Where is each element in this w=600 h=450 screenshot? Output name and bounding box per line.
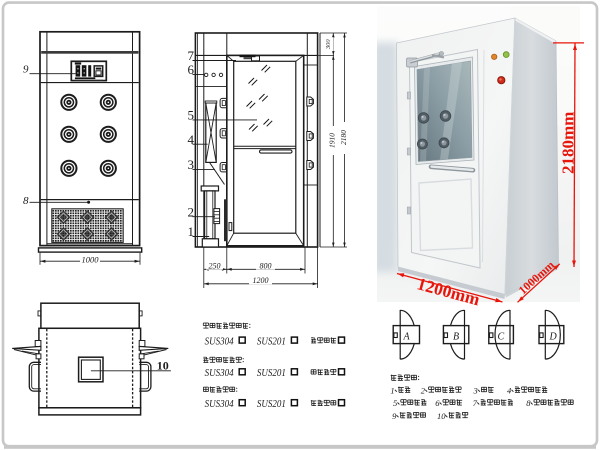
svg-text:8: 8 bbox=[526, 398, 531, 408]
svg-text:SUS304: SUS304 bbox=[205, 368, 235, 379]
svg-text:4: 4 bbox=[188, 132, 195, 147]
svg-text:300: 300 bbox=[325, 39, 332, 51]
svg-text:10: 10 bbox=[437, 411, 446, 421]
svg-text:SUS304: SUS304 bbox=[205, 337, 235, 348]
svg-text:SUS201: SUS201 bbox=[257, 399, 286, 410]
svg-text:1200: 1200 bbox=[253, 276, 269, 285]
svg-text:C: C bbox=[498, 332, 505, 343]
svg-text:9: 9 bbox=[392, 411, 397, 421]
svg-text:SUS304: SUS304 bbox=[205, 399, 235, 410]
svg-text:10: 10 bbox=[157, 359, 169, 373]
svg-text:9: 9 bbox=[23, 64, 29, 76]
svg-text:A: A bbox=[403, 332, 411, 343]
svg-text:D: D bbox=[549, 332, 558, 343]
svg-text:2180mm: 2180mm bbox=[559, 112, 578, 174]
svg-text:6: 6 bbox=[435, 398, 440, 408]
svg-text:SUS201: SUS201 bbox=[257, 368, 286, 379]
svg-text:SUS201: SUS201 bbox=[257, 337, 286, 348]
svg-text:250: 250 bbox=[209, 262, 221, 271]
svg-text:B: B bbox=[453, 332, 459, 343]
svg-text:2180: 2180 bbox=[339, 130, 348, 145]
svg-text:2: 2 bbox=[421, 385, 426, 395]
svg-text:1910: 1910 bbox=[328, 133, 337, 148]
svg-text:1: 1 bbox=[390, 385, 394, 395]
svg-text:3: 3 bbox=[473, 385, 478, 395]
svg-text:800: 800 bbox=[260, 262, 272, 271]
svg-text:8: 8 bbox=[23, 195, 29, 207]
svg-text:5: 5 bbox=[393, 398, 397, 408]
svg-text:7: 7 bbox=[473, 398, 478, 408]
svg-text:1000: 1000 bbox=[82, 255, 100, 265]
